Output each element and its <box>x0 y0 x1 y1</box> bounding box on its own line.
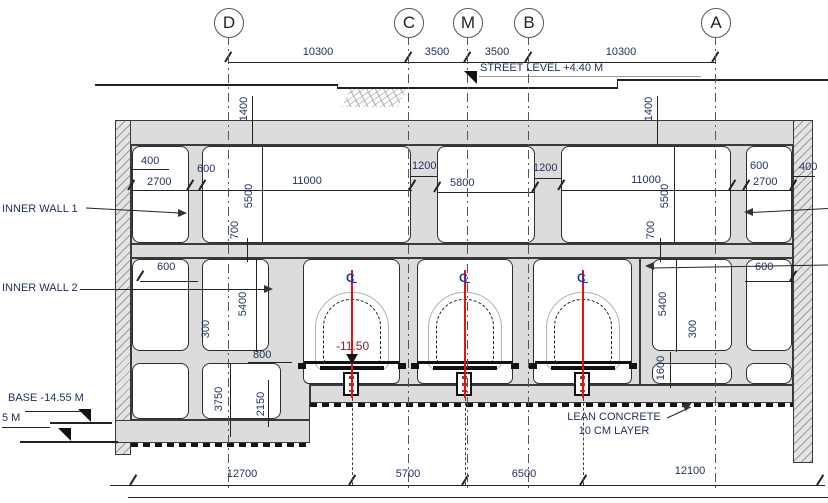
cl-l: L <box>464 275 470 286</box>
dim-top-DC: 10300 <box>283 46 353 58</box>
dim-bottom-12700: 12700 <box>207 468 277 480</box>
cl-l: L <box>351 275 357 286</box>
dimline-400-right <box>793 176 815 177</box>
dimline-400-left <box>131 169 169 170</box>
dimline-5400-right <box>676 259 677 352</box>
dim-1200-left: 1200 <box>412 160 436 172</box>
grid-label-B: B <box>523 13 534 33</box>
dim-3750: 3750 <box>213 379 225 419</box>
dimline-700-left <box>247 238 248 262</box>
grid-line-C <box>408 36 409 492</box>
dim-400-right: 400 <box>799 161 817 173</box>
tunnel-2-track-edge-l <box>411 363 419 369</box>
dim-5800: 5800 <box>450 177 474 189</box>
base-slab-left <box>115 420 310 443</box>
inner-wall-1-arrow <box>178 209 187 217</box>
dim-11000-left: 11000 <box>272 175 342 187</box>
grid-bubble-B: B <box>514 8 544 38</box>
dimline-1200-right <box>535 178 561 179</box>
grid-label-C: C <box>403 13 415 33</box>
dim-300-left: 300 <box>200 309 212 349</box>
base-level-marker <box>78 409 91 422</box>
lean-concrete-label-1: LEAN CONCRETE <box>560 411 668 423</box>
dim-600-upper-left: 600 <box>197 163 215 175</box>
tunnel-2-track-edge-r <box>511 363 519 369</box>
tick <box>129 474 137 485</box>
tunnel-2-centerline-symbol: CL <box>459 271 475 287</box>
dim-700-right: 700 <box>645 210 657 250</box>
dimline-5500-right <box>674 146 675 244</box>
tunnel-1-centerline <box>351 270 353 398</box>
right-leader-1-arrow <box>744 208 753 216</box>
inner-wall-2-arrow <box>264 285 273 293</box>
dim-2700-left: 2700 <box>147 176 171 188</box>
tunnel-1-centerline-symbol: CL <box>346 271 362 287</box>
dim-1400-right: 1400 <box>643 89 655 129</box>
tunnel-1-track-edge-l <box>298 363 306 369</box>
grid-label-D: D <box>223 13 235 33</box>
grid-label-M: M <box>461 13 475 33</box>
dim-top-MB: 3500 <box>462 46 532 58</box>
ground-line-3 <box>617 79 828 81</box>
dimline-1600 <box>670 352 671 388</box>
cl-extension-3 <box>583 393 584 485</box>
dim-700-left: 700 <box>229 210 241 250</box>
street-label-underline <box>479 76 701 77</box>
tick <box>816 474 824 485</box>
ground-line-2 <box>337 87 618 89</box>
dimline-1400-left <box>252 96 253 145</box>
dimline-upper-right <box>561 190 793 191</box>
dimline-700-right <box>660 238 661 262</box>
grid-line-D <box>228 36 229 492</box>
dim-1400-left: 1400 <box>238 89 250 129</box>
dim-5500-right: 5500 <box>659 176 671 216</box>
lean-concrete-right <box>310 403 793 407</box>
dimline-upper-left <box>131 190 412 191</box>
dim-300-right: 300 <box>687 309 699 349</box>
grid-bubble-D: D <box>214 8 244 38</box>
dim-top-BA: 10300 <box>586 46 656 58</box>
base-2-label-line <box>2 427 50 428</box>
dimline-600-mid-right <box>745 281 793 282</box>
basement-room-1 <box>132 363 189 419</box>
dim-600-upper-right: 600 <box>750 160 768 172</box>
tunnel-3-track-edge-r <box>629 363 637 369</box>
dim-5500-left: 5500 <box>243 176 255 216</box>
roof-slab <box>115 120 813 145</box>
tunnel-level-marker <box>346 354 358 364</box>
tunnel-1-track-edge-r <box>398 363 406 369</box>
dim-1600: 1600 <box>655 348 667 388</box>
grid-bubble-M: M <box>453 8 483 38</box>
lean-concrete-left <box>131 443 310 447</box>
tunnel-3-centerline-symbol: CL <box>577 271 593 287</box>
dimline-5800 <box>437 192 535 193</box>
grid-bubble-A: A <box>701 8 731 38</box>
dim-5400-left: 5400 <box>237 284 249 324</box>
dimline-800 <box>248 362 292 363</box>
base-level-2-marker <box>58 428 71 441</box>
dim-600-mid-right: 600 <box>755 261 773 273</box>
inner-wall-2-label: INNER WALL 2 <box>2 282 78 294</box>
tunnel-3-track-edge-l <box>529 363 537 369</box>
street-level-marker <box>464 71 477 84</box>
dim-1200-right: 1200 <box>533 162 557 174</box>
tunnel-3-centerline <box>582 270 584 398</box>
top-dim-line <box>228 62 715 63</box>
lower-room-left-2 <box>202 259 269 351</box>
grid-label-A: A <box>710 13 721 33</box>
dimline-1200-left <box>411 176 437 177</box>
grid-line-B <box>528 36 529 492</box>
dimline-3750 <box>230 363 231 437</box>
drawing-canvas: D C M B A 10300 3500 3500 10300 STREET L… <box>0 0 828 503</box>
base-level-line <box>50 422 112 424</box>
bottom-border-line <box>128 497 828 498</box>
cl-l: L <box>582 275 588 286</box>
base-level-2-line <box>20 441 118 443</box>
dim-600-mid-left: 600 <box>157 261 175 273</box>
dim-400-left: 400 <box>141 155 159 167</box>
dim-2150: 2150 <box>255 384 267 424</box>
left-outer-wall <box>115 120 131 455</box>
dim-bottom-5700: 5700 <box>373 468 443 480</box>
dim-800: 800 <box>253 349 271 361</box>
grid-bubble-C: C <box>394 8 424 38</box>
lean-concrete-label-2: 10 CM LAYER <box>560 425 668 437</box>
dimline-1400-right <box>657 96 658 145</box>
tunnel-level-label: -11.50 <box>336 339 369 353</box>
cl-extension-2 <box>465 393 466 485</box>
dim-5400-right: 5400 <box>657 284 669 324</box>
dim-bottom-6500: 6500 <box>489 468 559 480</box>
right-leader-2-arrow <box>645 262 654 270</box>
dim-bottom-12100: 12100 <box>655 465 725 477</box>
upper-hall-center <box>437 146 535 243</box>
dimline-5500-left <box>262 146 263 244</box>
dimline-5400-left <box>256 259 257 352</box>
dimline-600-mid-left <box>140 281 198 282</box>
base-slab-right <box>310 385 793 403</box>
base-level-label: BASE -14.55 M <box>8 392 84 404</box>
tunnel-2-centerline <box>464 270 466 398</box>
basement-room-4 <box>746 363 792 384</box>
grid-line-A <box>715 36 716 492</box>
dim-2700-right: 2700 <box>753 176 777 188</box>
street-level-label: STREET LEVEL +4.40 M <box>480 62 603 74</box>
base-level-2-label: 5 M <box>2 412 20 424</box>
cl-extension-1 <box>352 393 353 485</box>
ground-line-1 <box>95 84 337 86</box>
inner-wall-1-label: INNER WALL 1 <box>2 203 78 215</box>
dimline-2150 <box>268 380 269 427</box>
grid-line-M <box>467 36 468 492</box>
ground-hatch <box>342 89 406 107</box>
